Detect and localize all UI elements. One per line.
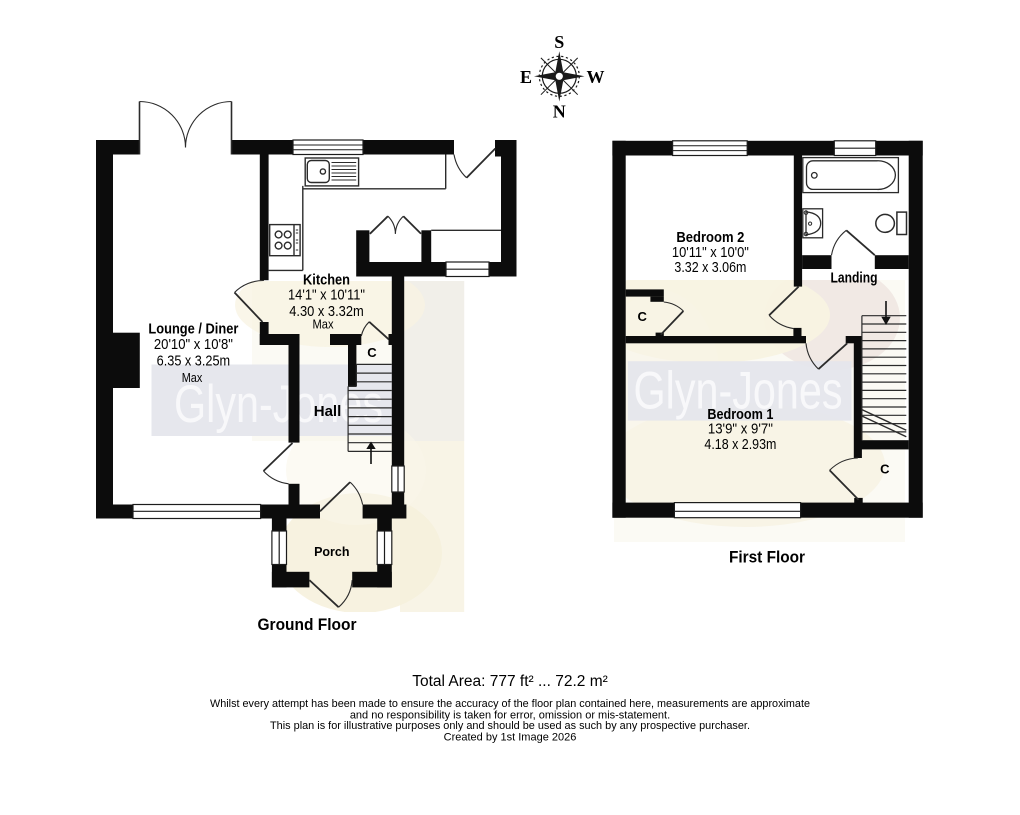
svg-text:This plan is for illustrative: This plan is for illustrative purposes o… xyxy=(270,720,750,732)
svg-text:Total Area: 777 ft² ... 72.2 m: Total Area: 777 ft² ... 72.2 m² xyxy=(412,673,608,690)
svg-text:Created by 1st Image 2026: Created by 1st Image 2026 xyxy=(444,731,577,743)
svg-text:E: E xyxy=(520,67,532,87)
svg-text:3.32 x 3.06m: 3.32 x 3.06m xyxy=(674,259,746,276)
svg-text:First Floor: First Floor xyxy=(729,547,805,566)
svg-text:6.35 x 3.25m: 6.35 x 3.25m xyxy=(157,353,231,370)
svg-text:C: C xyxy=(638,309,648,324)
svg-text:20'10" x 10'8": 20'10" x 10'8" xyxy=(154,336,233,353)
svg-text:Max: Max xyxy=(313,317,334,332)
svg-text:W: W xyxy=(587,67,605,87)
svg-text:Max: Max xyxy=(182,370,203,385)
svg-text:Lounge / Diner: Lounge / Diner xyxy=(148,320,238,337)
svg-text:Hall: Hall xyxy=(314,403,342,420)
svg-text:14'1" x 10'11": 14'1" x 10'11" xyxy=(288,287,365,304)
svg-text:S: S xyxy=(554,32,564,52)
svg-text:Porch: Porch xyxy=(314,545,349,559)
svg-text:4.18 x 2.93m: 4.18 x 2.93m xyxy=(704,436,776,453)
svg-text:C: C xyxy=(880,462,890,477)
svg-text:Ground Floor: Ground Floor xyxy=(258,615,357,634)
svg-text:N: N xyxy=(553,102,566,122)
svg-text:13'9" x 9'7": 13'9" x 9'7" xyxy=(708,421,773,438)
svg-text:C: C xyxy=(367,345,377,360)
svg-text:Landing: Landing xyxy=(831,269,878,286)
svg-text:Whilst every attempt has been: Whilst every attempt has been made to en… xyxy=(210,698,810,710)
